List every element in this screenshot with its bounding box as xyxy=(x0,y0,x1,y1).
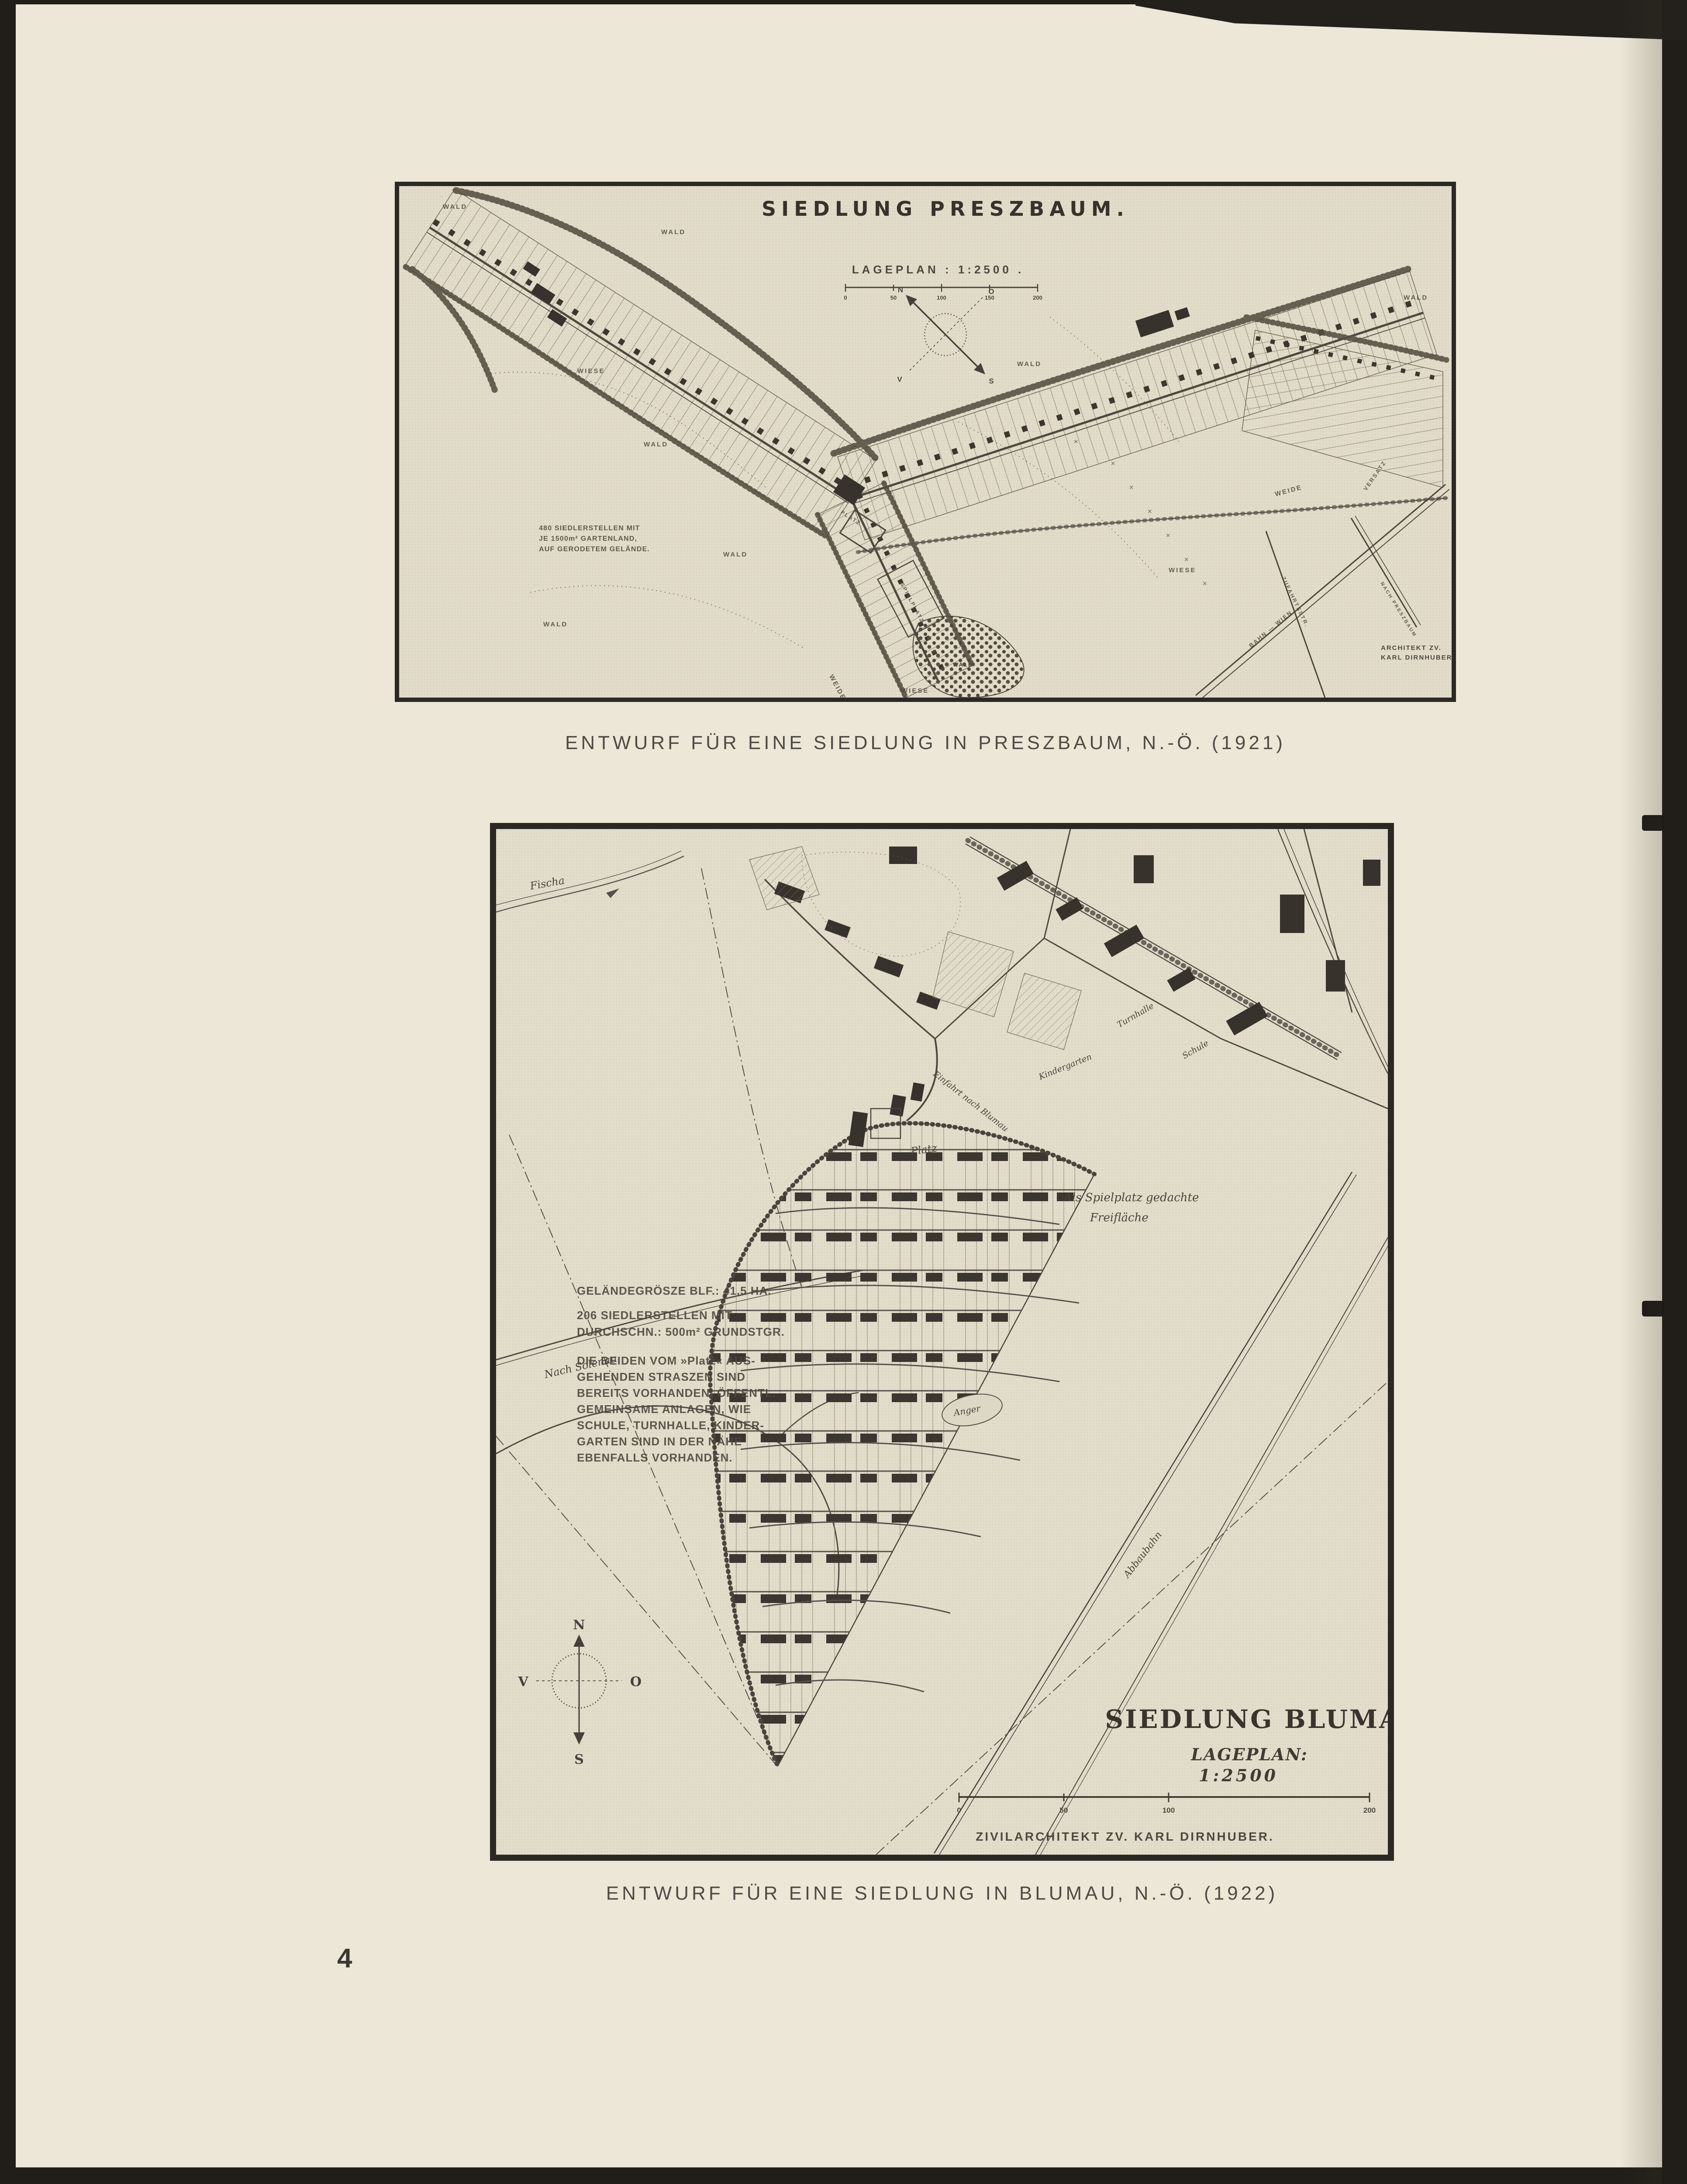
building xyxy=(889,847,917,864)
building xyxy=(1326,960,1345,992)
label-wiese-3: WIESE xyxy=(901,687,929,695)
caption-preszbaum-text: ENTWURF FÜR EINE SIEDLUNG IN PRESZBAUM, … xyxy=(565,732,1286,753)
compass-n: N xyxy=(573,1617,585,1633)
page-right-shading xyxy=(1620,0,1662,2184)
building xyxy=(1280,895,1304,933)
compass-n: N xyxy=(898,286,903,294)
x-mark: × xyxy=(1074,438,1078,446)
compass-w: V xyxy=(897,375,902,384)
label-wald-2: WALD xyxy=(661,228,686,236)
map-blumau-drawing: N V O S Fischa Nach Solenau Platz Anger … xyxy=(496,829,1388,1855)
map2-scale-heading-1: LAGEPLAN: xyxy=(1190,1745,1308,1764)
building xyxy=(1363,860,1380,886)
caption-blumau: ENTWURF FÜR EINE SIEDLUNG IN BLUMAU, N.-… xyxy=(490,1883,1394,1904)
map2-architect: ZIVILARCHITEKT ZV. KARL DIRNHUBER. xyxy=(976,1830,1274,1843)
x-mark: × xyxy=(1111,460,1115,467)
x-mark: × xyxy=(1166,532,1170,539)
scale-tick-50: 50 xyxy=(890,294,897,301)
scale-tick-200: 200 xyxy=(1033,294,1042,301)
x-mark: × xyxy=(1184,556,1188,563)
x-mark: × xyxy=(1129,484,1133,491)
page-number-text: 4 xyxy=(337,1943,352,1973)
map2-note-line-4: DIE BEIDEN VOM »Platz« AUS- xyxy=(577,1354,756,1367)
map-preszbaum-drawing: WALD xyxy=(399,186,1452,698)
page-number: 4 xyxy=(337,1943,352,1974)
label-wald-5: WALD xyxy=(543,621,568,628)
map2-scale-heading-2: 1:2500 xyxy=(1199,1766,1278,1785)
map2-note-line-1: GELÄNDEGRÖSZE BLF.: 41,5 HA. xyxy=(577,1284,772,1297)
map2-note-line-7: GEMEINSAME ANLAGEN, WIE xyxy=(577,1403,751,1416)
scan-edge-bottom xyxy=(0,2167,1687,2184)
scan-edge-top-right-wedge xyxy=(1135,0,1687,40)
map2-scale-tick-100: 100 xyxy=(1163,1806,1175,1814)
map1-notes-block: 480 SIEDLERSTELLEN MIT JE 1500m² GARTENL… xyxy=(539,525,650,553)
label-wiese-1: WIESE xyxy=(577,367,605,375)
map1-architect-line-2: KARL DIRNHUBER. xyxy=(1381,654,1452,661)
label-wald-7: WALD xyxy=(1404,294,1428,301)
building xyxy=(1134,855,1154,883)
scale-tick-100: 100 xyxy=(937,294,946,301)
caption-blumau-text: ENTWURF FÜR EINE SIEDLUNG IN BLUMAU, N.-… xyxy=(606,1883,1278,1904)
label-spielplatz-2: Freifläche xyxy=(1090,1211,1149,1224)
label-spielplatz-1: Als Spielplatz gedachte xyxy=(1063,1191,1199,1204)
map2-note-line-3: DURCHSCHN.: 500m² GRUNDSTGR. xyxy=(577,1325,785,1338)
map2-scale-tick-200: 200 xyxy=(1363,1806,1376,1814)
label-wald-1: WALD xyxy=(443,203,467,211)
map2-note-line-2: 206 SIEDLERSTELLEN MIT xyxy=(577,1309,732,1322)
x-mark: × xyxy=(1148,508,1152,515)
map2-note-line-9: GARTEN SIND IN DER NÄHE xyxy=(577,1435,742,1448)
map1-note-line-2: JE 1500m² GARTENLAND, xyxy=(539,535,637,543)
map2-note-line-8: SCHULE, TURNHALLE, KINDER- xyxy=(577,1419,764,1432)
map1-title: SIEDLUNG PRESZBAUM. xyxy=(762,197,1129,221)
map-preszbaum: WALD xyxy=(395,182,1456,702)
compass-o: O xyxy=(630,1674,642,1690)
scan-edge-right xyxy=(1662,0,1687,2184)
map2-scale-tick-50: 50 xyxy=(1060,1806,1068,1814)
label-wiese-2: WIESE xyxy=(1169,567,1196,574)
map2-note-line-5: GEHENDEN STRASZEN SIND xyxy=(577,1370,745,1383)
scale-tick-0: 0 xyxy=(844,294,847,301)
compass-s: S xyxy=(989,377,994,385)
scan-edge-left xyxy=(0,0,16,2184)
map-blumau: N V O S Fischa Nach Solenau Platz Anger … xyxy=(490,823,1394,1861)
compass-o: O xyxy=(988,287,994,296)
compass-s: S xyxy=(574,1752,584,1767)
map2-note-line-6: BEREITS VORHANDEN. ÖFFENTL. xyxy=(577,1386,776,1400)
compass-w: V xyxy=(517,1674,528,1690)
map1-scale-heading: LAGEPLAN : 1:2500 . xyxy=(852,263,1025,276)
x-mark: × xyxy=(1203,580,1207,587)
map1-note-line-1: 480 SIEDLERSTELLEN MIT xyxy=(539,525,640,532)
label-wald-3: WALD xyxy=(644,441,668,448)
label-wald-6: WALD xyxy=(1017,360,1042,368)
caption-preszbaum: ENTWURF FÜR EINE SIEDLUNG IN PRESZBAUM, … xyxy=(395,732,1456,754)
map2-title: SIEDLUNG BLUMAU xyxy=(1105,1704,1388,1734)
label-wald-4: WALD xyxy=(723,551,748,558)
map2-note-line-10: EBENFALLS VORHANDEN. xyxy=(577,1451,733,1464)
map2-scale-tick-0: 0 xyxy=(957,1806,961,1814)
map1-architect-line-1: ARCHITEKT ZV. xyxy=(1381,644,1442,652)
map1-note-line-3: AUF GERODETEM GELÄNDE. xyxy=(539,545,650,553)
woods-blob-label: WALD xyxy=(953,661,973,668)
